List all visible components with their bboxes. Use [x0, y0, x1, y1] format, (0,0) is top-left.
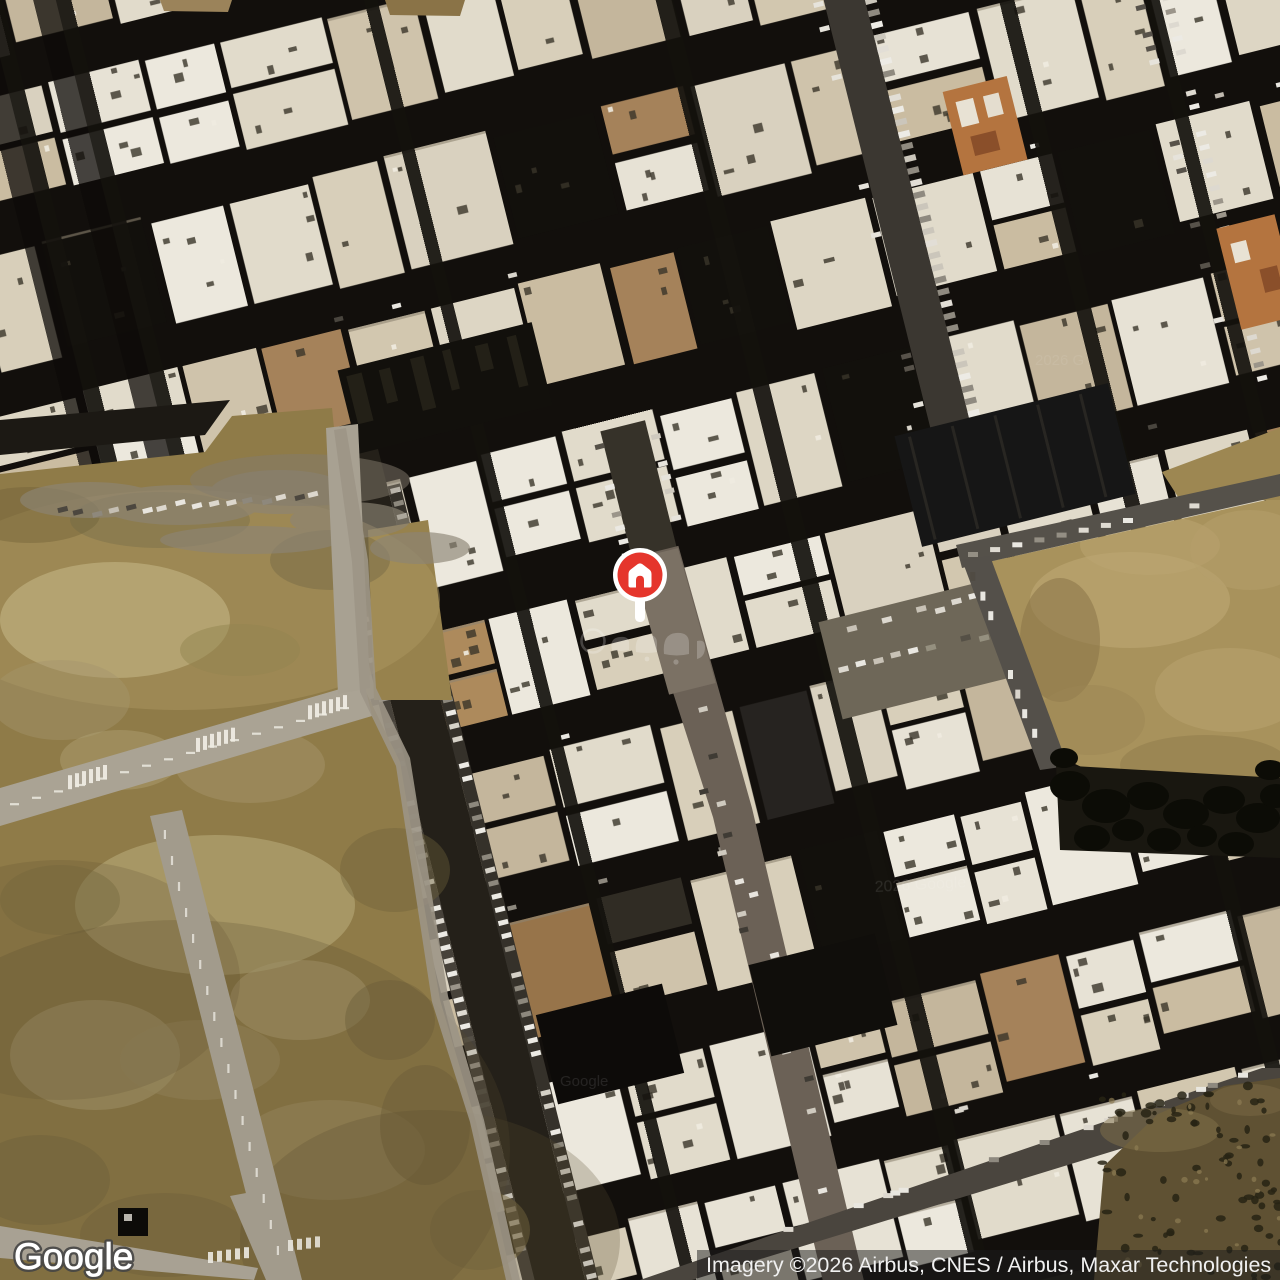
- svg-text:Google: Google: [560, 1073, 608, 1090]
- svg-text:Google: Google: [14, 1236, 133, 1277]
- svg-text:Imagery ©2026 Airbus, CNES / A: Imagery ©2026 Airbus, CNES / Airbus, Max…: [706, 1253, 1271, 1277]
- svg-text:2026 G: 2026 G: [1035, 352, 1084, 369]
